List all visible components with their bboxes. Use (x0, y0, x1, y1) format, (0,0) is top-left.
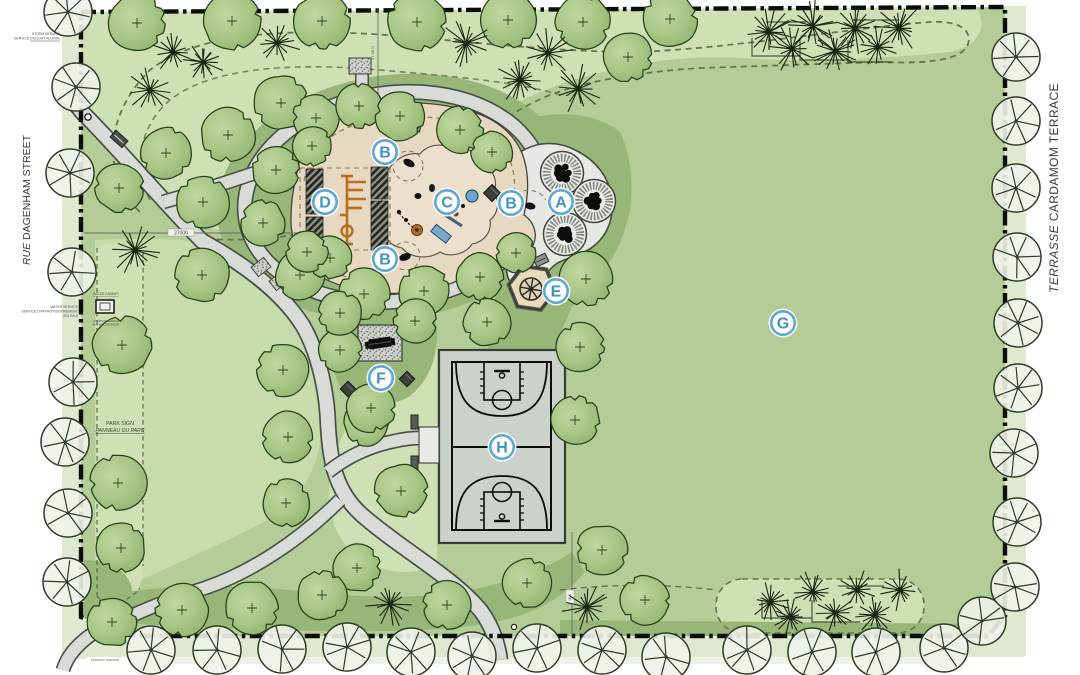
svg-text:BORNE D'INCENDIE: BORNE D'INCENDIE (93, 323, 120, 327)
svg-text:SERVICE D'APPROVISIONNEMENT: SERVICE D'APPROVISIONNEMENT (21, 310, 78, 314)
svg-text:E: E (551, 284, 562, 301)
svg-text:WATER CABINET: WATER CABINET (93, 292, 119, 296)
svg-text:B: B (379, 145, 391, 162)
svg-text:WATER SERVICE: WATER SERVICE (50, 305, 78, 309)
svg-text:G: G (777, 316, 789, 333)
svg-text:SERVICE D'EGOUT PLUVIAL: SERVICE D'EGOUT PLUVIAL (14, 37, 60, 41)
svg-text:SANITARY SERVICE: SANITARY SERVICE (91, 658, 120, 662)
svg-text:F: F (376, 371, 386, 388)
svg-text:H: H (496, 440, 508, 457)
svg-text:PANNEAU DU PARC: PANNEAU DU PARC (95, 428, 144, 434)
svg-text:PARK SIGN: PARK SIGN (106, 421, 134, 427)
svg-text:B: B (505, 196, 517, 213)
svg-text:(EN EAU): (EN EAU) (63, 314, 78, 318)
svg-text:RUE DAGENHAM STREET: RUE DAGENHAM STREET (21, 134, 33, 265)
svg-text:C: C (441, 195, 453, 212)
svg-text:37000: 37000 (174, 231, 188, 237)
svg-text:STORM SERVICE: STORM SERVICE (32, 32, 61, 36)
svg-text:TERRASSE CARDAMOM TERRACE: TERRASSE CARDAMOM TERRACE (1047, 83, 1061, 293)
svg-text:A: A (555, 195, 567, 212)
svg-text:D: D (319, 195, 331, 212)
svg-text:B: B (379, 252, 391, 269)
